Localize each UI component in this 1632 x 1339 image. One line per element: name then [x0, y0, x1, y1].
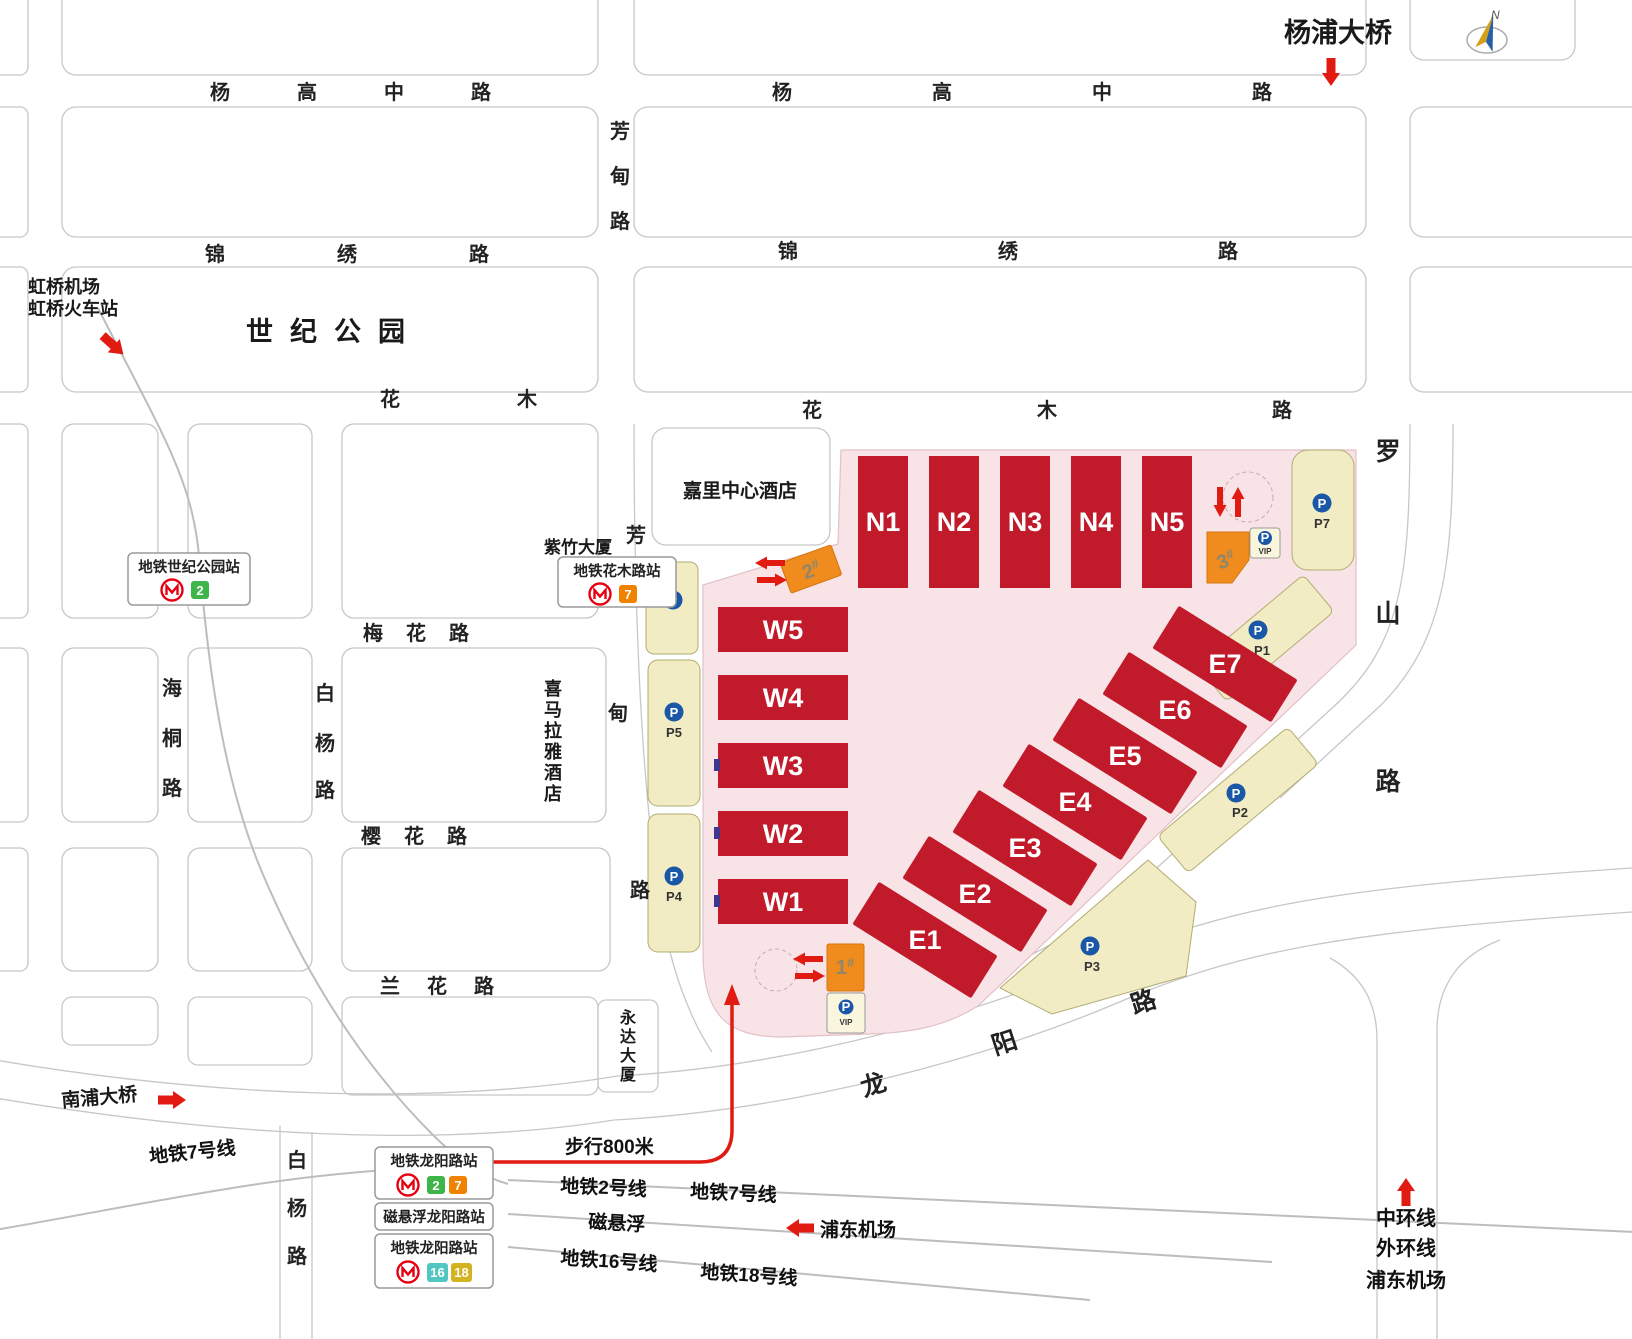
- svg-text:桐: 桐: [162, 727, 182, 750]
- label-century-park: 世纪公园: [246, 316, 422, 347]
- road-label-huamu-e: 花木路: [802, 398, 1507, 422]
- road-label-jinxiu-e: 锦绣路: [778, 239, 1438, 263]
- svg-text:E7: E7: [1208, 649, 1241, 679]
- svg-text:白: 白: [315, 681, 335, 705]
- station-century-park: 地铁世纪公园站 2: [128, 553, 250, 605]
- svg-text:VIP: VIP: [840, 1018, 854, 1027]
- label-hongqiao-airport: 虹桥机场: [28, 276, 100, 297]
- label-hongqiao-station: 虹桥火车站: [28, 298, 118, 319]
- label-pudong-airport-maglev: 浦东机场: [820, 1218, 896, 1241]
- svg-text:地铁花木路站: 地铁花木路站: [574, 562, 661, 580]
- road-label-yanggaozhong-w: 杨高中路: [210, 80, 558, 104]
- road-label-yinghua: 樱花路: [361, 824, 490, 848]
- road-label-haitong: 海 桐 路: [162, 676, 183, 800]
- station-longyang-metro27: 地铁龙阳路站 2 7: [375, 1147, 493, 1199]
- svg-text:芳: 芳: [626, 523, 646, 547]
- svg-text:路: 路: [610, 209, 631, 233]
- svg-text:E1: E1: [908, 925, 941, 955]
- label-metro-line18: 地铁18号线: [700, 1260, 799, 1290]
- svg-text:马: 马: [544, 700, 562, 720]
- svg-text:杨: 杨: [287, 1197, 307, 1220]
- station-longyang-metro1618: 地铁龙阳路站 16 18: [375, 1234, 493, 1288]
- parking-label-p4: P4: [666, 889, 683, 904]
- svg-text:甸: 甸: [609, 164, 630, 188]
- label-metro-line7: 地铁7号线: [690, 1180, 777, 1207]
- svg-text:罗: 罗: [1375, 438, 1400, 466]
- road-label-lanhua: 兰花路: [380, 974, 521, 998]
- svg-text:地铁龙阳路站: 地铁龙阳路站: [391, 1239, 478, 1257]
- svg-text:路: 路: [1375, 768, 1401, 796]
- svg-text:N3: N3: [1008, 507, 1043, 537]
- svg-text:龙: 龙: [857, 1068, 889, 1102]
- road-label-fangdian-n: 芳 甸 路: [609, 119, 631, 233]
- road-label-jinxiu-w: 锦绣路: [205, 242, 601, 266]
- svg-text:E6: E6: [1158, 695, 1191, 725]
- svg-text:E4: E4: [1058, 787, 1091, 817]
- svg-text:阳: 阳: [988, 1026, 1020, 1060]
- road-label-huamu-w: 花木: [380, 387, 654, 411]
- label-pudong-airport-ring: 浦东机场: [1366, 1268, 1446, 1292]
- luoshan-road-lower-east: [1437, 940, 1500, 1339]
- svg-text:山: 山: [1375, 600, 1400, 628]
- parking-label-p7: P7: [1314, 516, 1330, 531]
- svg-text:18: 18: [454, 1265, 468, 1280]
- svg-text:店: 店: [544, 783, 562, 804]
- svg-text:2: 2: [196, 583, 203, 598]
- svg-text:路: 路: [315, 778, 336, 802]
- svg-text:路: 路: [162, 776, 183, 800]
- parking-label-p3: P3: [1084, 959, 1100, 974]
- svg-text:7: 7: [624, 587, 631, 602]
- svg-text:N1: N1: [866, 507, 901, 537]
- svg-text:W1: W1: [763, 887, 804, 917]
- svg-text:16: 16: [430, 1265, 444, 1280]
- map-canvas: P: [0, 0, 1632, 1339]
- svg-text:地铁龙阳路站: 地铁龙阳路站: [391, 1152, 478, 1170]
- svg-text:P: P: [1261, 530, 1270, 545]
- road-label-luoshan: 罗 山 路: [1375, 438, 1401, 796]
- parking-label-p2: P2: [1232, 805, 1248, 820]
- label-mid-ring: 中环线: [1376, 1206, 1436, 1230]
- svg-text:酒: 酒: [544, 762, 562, 783]
- svg-text:E5: E5: [1108, 741, 1141, 771]
- label-yangpu-bridge: 杨浦大桥: [1284, 17, 1392, 48]
- compass-north-label: N: [1491, 8, 1500, 22]
- metro-line7-track-west: [0, 1170, 388, 1230]
- svg-text:N2: N2: [937, 507, 972, 537]
- svg-text:W3: W3: [763, 751, 804, 781]
- road-label-yanggaozhong-e: 杨高中路: [772, 80, 1412, 104]
- svg-text:E3: E3: [1008, 833, 1041, 863]
- svg-text:杨: 杨: [315, 732, 335, 755]
- label-metro-line16: 地铁16号线: [560, 1246, 659, 1276]
- svg-text:W2: W2: [763, 819, 804, 849]
- svg-text:达: 达: [620, 1027, 636, 1046]
- sniec-transport-map: P: [0, 0, 1632, 1339]
- svg-text:地铁世纪公园站: 地铁世纪公园站: [138, 558, 240, 576]
- svg-text:厦: 厦: [620, 1066, 637, 1084]
- svg-text:路: 路: [287, 1244, 308, 1268]
- svg-text:磁悬浮龙阳路站: 磁悬浮龙阳路站: [383, 1208, 485, 1226]
- gate-1: 1#: [827, 944, 864, 991]
- label-kerry-hotel: 嘉里中心酒店: [682, 479, 797, 502]
- svg-text:芳: 芳: [610, 119, 630, 143]
- label-walk-800m: 步行800米: [565, 1135, 655, 1158]
- svg-text:白: 白: [287, 1148, 307, 1172]
- label-maglev: 磁悬浮: [588, 1210, 646, 1236]
- label-nanpu-bridge: 南浦大桥: [60, 1082, 139, 1112]
- label-outer-ring: 外环线: [1376, 1236, 1436, 1260]
- road-label-meihua: 梅花路: [363, 621, 492, 645]
- svg-text:E2: E2: [958, 879, 991, 909]
- label-metro-line7-west: 地铁7号线: [148, 1136, 237, 1168]
- svg-text:甸: 甸: [607, 701, 628, 725]
- svg-text:大: 大: [620, 1046, 636, 1065]
- svg-text:W4: W4: [763, 683, 804, 713]
- road-label-baiyang-s: 白 杨 路: [287, 1148, 308, 1268]
- svg-text:永: 永: [619, 1008, 636, 1027]
- svg-text:W5: W5: [763, 615, 804, 645]
- svg-text:拉: 拉: [544, 720, 562, 741]
- roundabout-north: [1223, 472, 1273, 522]
- label-metro-line2: 地铁2号线: [560, 1174, 647, 1201]
- label-zizhu-tower: 紫竹大厦: [544, 537, 613, 557]
- vip-parking-north: P VIP: [1250, 528, 1280, 558]
- svg-text:喜: 喜: [544, 679, 562, 699]
- svg-text:路: 路: [630, 878, 651, 902]
- svg-text:雅: 雅: [543, 741, 562, 762]
- svg-text:VIP: VIP: [1259, 547, 1273, 556]
- svg-text:海: 海: [162, 676, 182, 700]
- station-longyang-maglev: 磁悬浮龙阳路站: [375, 1203, 493, 1230]
- parking-label-p5: P5: [666, 725, 682, 740]
- svg-text:P: P: [842, 999, 851, 1014]
- svg-text:7: 7: [454, 1178, 461, 1193]
- road-label-baiyang-n: 白 杨 路: [315, 681, 336, 802]
- vip-parking-south: P VIP: [827, 993, 865, 1033]
- svg-text:N4: N4: [1079, 507, 1114, 537]
- svg-text:N5: N5: [1150, 507, 1185, 537]
- roundabout-south: [755, 949, 797, 991]
- svg-text:2: 2: [432, 1178, 439, 1193]
- label-himalaya-hotel: 喜 马 拉 雅 酒 店: [543, 679, 562, 804]
- station-huamu-road: 地铁花木路站 7: [558, 557, 676, 607]
